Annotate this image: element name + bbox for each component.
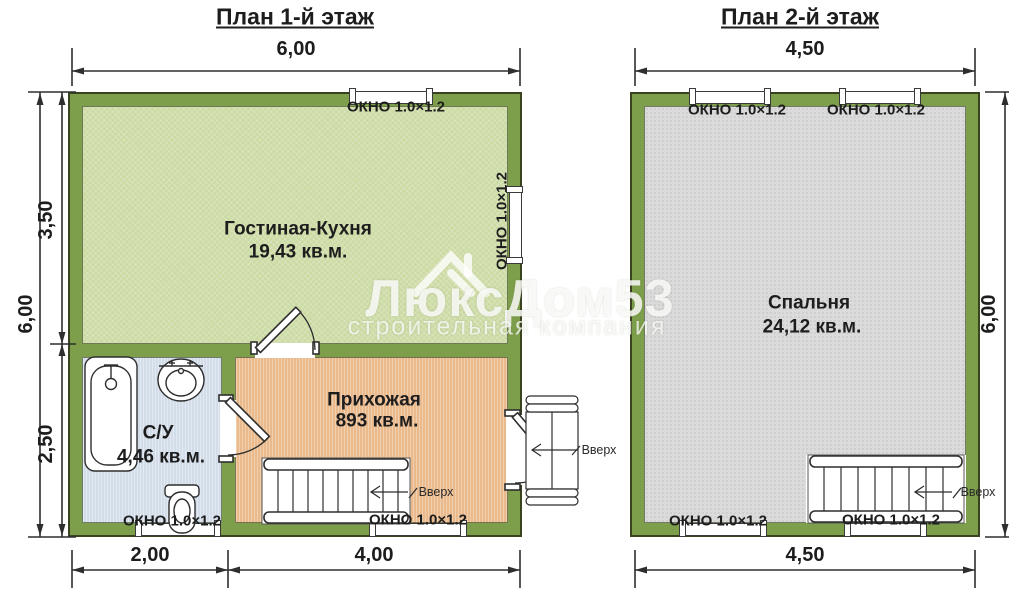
window-label: ОКНО 1.0×1.2 — [347, 100, 445, 115]
porch-up-label: Вверх — [582, 444, 617, 457]
bedroom-name: Спальня — [768, 294, 850, 313]
window-label: ОКНО 1.0×1.2 — [688, 103, 786, 118]
plan1-hallway — [235, 357, 508, 523]
stairs-up-label: Вверх — [419, 486, 454, 499]
plan2-dim-top-label: 4,50 — [786, 39, 825, 59]
window-label: ОКНО 1.0×1.2 — [123, 514, 221, 529]
watermark-subtitle: строительная компания — [348, 313, 667, 342]
hallway-name: Прихожая — [327, 391, 421, 410]
plan1-dim-top-label: 6,00 — [277, 39, 316, 59]
porch-steps-icon — [526, 396, 580, 505]
plan2-title: План 2-й этаж — [721, 6, 879, 29]
window-label: ОКНО 1.0×1.2 — [669, 514, 767, 529]
hallway-area: 893 кв.м. — [336, 412, 419, 431]
window-label: ОКНО 1.0×1.2 — [495, 172, 510, 270]
plan1-dim-bottom-right-label: 4,00 — [355, 545, 394, 565]
window-label: ОКНО 1.0×1.2 — [842, 513, 940, 528]
bathroom-name: С/У — [143, 424, 174, 443]
window-icon — [509, 190, 522, 260]
plan1-dim-left-upper-label: 3,50 — [36, 201, 56, 240]
living-room-name: Гостиная-Кухня — [224, 220, 372, 239]
floor-plans-canvas: План 1-й этаж 6,00 6,00 3,50 2,50 2,00 4… — [0, 0, 1010, 589]
window-label: ОКНО 1.0×1.2 — [827, 103, 925, 118]
window-label: ОКНО 1.0×1.2 — [369, 513, 467, 528]
bedroom-area: 24,12 кв.м. — [763, 318, 862, 337]
bathroom-area: 4,46 кв.м. — [117, 448, 205, 467]
plan1-dim-left-lower-label: 2,50 — [36, 425, 56, 464]
plan2-dim-bottom-label: 4,50 — [786, 545, 825, 565]
living-room-area: 19,43 кв.м. — [249, 243, 348, 262]
stairs-up-label: Вверх — [961, 486, 996, 499]
plan2-dim-right-label: 6,00 — [979, 295, 999, 334]
plan1-title: План 1-й этаж — [216, 6, 374, 29]
plan1-dim-left-label: 6,00 — [16, 295, 36, 334]
plan1-dim-bottom-left-label: 2,00 — [131, 545, 170, 565]
